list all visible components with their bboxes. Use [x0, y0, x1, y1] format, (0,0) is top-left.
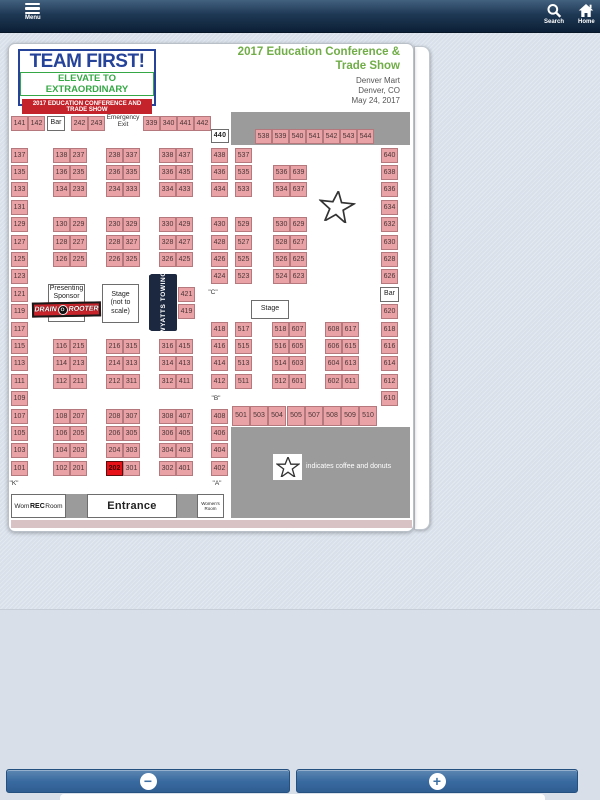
booth-142[interactable]: 142	[28, 116, 45, 131]
booth-523[interactable]: 523	[235, 269, 252, 284]
booth-414[interactable]: 414	[211, 356, 228, 371]
room-text-post: Room	[45, 503, 62, 510]
booth-327[interactable]: 327	[123, 235, 140, 250]
booth-335[interactable]: 335	[123, 165, 140, 180]
booth-610[interactable]: 610	[381, 391, 398, 406]
booth-123[interactable]: 123	[11, 269, 28, 284]
booth-227[interactable]: 227	[70, 235, 87, 250]
home-icon	[578, 3, 594, 18]
booth-528[interactable]: 528	[273, 235, 290, 250]
team-first-logo: TEAM FIRST! ELEVATE TO EXTRAORDINARY 201…	[18, 49, 156, 106]
booth-615[interactable]: 615	[342, 339, 359, 354]
booth-626[interactable]: 626	[381, 269, 398, 284]
booth-205[interactable]: 205	[70, 426, 87, 441]
booth-433[interactable]: 433	[176, 182, 193, 197]
booth-235[interactable]: 235	[70, 165, 87, 180]
booth-419[interactable]: 419	[178, 304, 195, 319]
booth-513[interactable]: 513	[235, 356, 252, 371]
booth-525[interactable]: 525	[235, 252, 252, 267]
booth-543[interactable]: 543	[340, 129, 357, 144]
area-440[interactable]: 440	[211, 129, 229, 143]
booth-408[interactable]: 408	[211, 409, 228, 424]
booth-104[interactable]: 104	[53, 443, 70, 458]
booth-429[interactable]: 429	[176, 217, 193, 232]
booth-541[interactable]: 541	[306, 129, 323, 144]
booth-606[interactable]: 606	[325, 339, 342, 354]
booth-632[interactable]: 632	[381, 217, 398, 232]
womens-rec-room: Wom REC Room	[11, 494, 66, 518]
booth-202[interactable]: 202	[106, 461, 123, 476]
booth-505[interactable]: 505	[287, 406, 305, 426]
booth-518[interactable]: 518	[272, 322, 289, 337]
booth-326[interactable]: 326	[159, 252, 176, 267]
booth-108[interactable]: 108	[53, 409, 70, 424]
booth-503[interactable]: 503	[250, 406, 268, 426]
booth-237[interactable]: 237	[70, 148, 87, 163]
booth-618[interactable]: 618	[381, 322, 398, 337]
booth-538[interactable]: 538	[255, 129, 272, 144]
booth-339[interactable]: 339	[143, 116, 160, 131]
booth-533[interactable]: 533	[235, 182, 252, 197]
booth-112[interactable]: 112	[53, 374, 70, 389]
minus-icon: −	[140, 773, 157, 790]
booth-404[interactable]: 404	[211, 443, 228, 458]
menu-button[interactable]: Menu	[25, 3, 41, 21]
booth-544[interactable]: 544	[357, 129, 374, 144]
booth-314[interactable]: 314	[159, 356, 176, 371]
booth-106[interactable]: 106	[53, 426, 70, 441]
booth-236[interactable]: 236	[106, 165, 123, 180]
booth-333[interactable]: 333	[123, 182, 140, 197]
booth-328[interactable]: 328	[159, 235, 176, 250]
booth-434[interactable]: 434	[211, 182, 228, 197]
booth-316[interactable]: 316	[159, 339, 176, 354]
room-text-pre: Wom	[14, 503, 29, 510]
booth-115[interactable]: 115	[11, 339, 28, 354]
coffee-star-marker	[316, 189, 357, 229]
booth-103[interactable]: 103	[11, 443, 28, 458]
booth-504[interactable]: 504	[268, 406, 286, 426]
booth-137[interactable]: 137	[11, 148, 28, 163]
booth-126[interactable]: 126	[53, 252, 70, 267]
event-title-line1: 2017 Education Conference &	[230, 45, 400, 59]
booth-228[interactable]: 228	[106, 235, 123, 250]
booth-114[interactable]: 114	[53, 356, 70, 371]
booth-512[interactable]: 512	[272, 374, 289, 389]
booth-315[interactable]: 315	[123, 339, 140, 354]
booth-138[interactable]: 138	[53, 148, 70, 163]
booth-620[interactable]: 620	[381, 304, 398, 319]
menu-label: Menu	[25, 15, 41, 21]
booth-329[interactable]: 329	[123, 217, 140, 232]
booth-136[interactable]: 136	[53, 165, 70, 180]
booth-133[interactable]: 133	[11, 182, 28, 197]
booth-230[interactable]: 230	[106, 217, 123, 232]
booth-402[interactable]: 402	[211, 461, 228, 476]
booth-125[interactable]: 125	[11, 252, 28, 267]
booth-229[interactable]: 229	[70, 217, 87, 232]
label-indicates: indicates coffee and donuts	[306, 463, 426, 471]
booth-438[interactable]: 438	[211, 148, 228, 163]
booth-113[interactable]: 113	[11, 356, 28, 371]
booth-623[interactable]: 623	[290, 269, 307, 284]
search-button[interactable]: Search	[544, 3, 564, 25]
booth-129[interactable]: 129	[11, 217, 28, 232]
booth-527[interactable]: 527	[235, 235, 252, 250]
booth-441[interactable]: 441	[177, 116, 194, 131]
booth-215[interactable]: 215	[70, 339, 87, 354]
booth-233[interactable]: 233	[70, 182, 87, 197]
booth-526[interactable]: 526	[273, 252, 290, 267]
sponsor-text-right: ROOTER	[69, 305, 99, 313]
room-text-bold: REC	[30, 503, 45, 510]
booth-416[interactable]: 416	[211, 339, 228, 354]
booth-102[interactable]: 102	[53, 461, 70, 476]
booth-539[interactable]: 539	[272, 129, 289, 144]
booth-436[interactable]: 436	[211, 165, 228, 180]
booth-530[interactable]: 530	[273, 217, 290, 232]
booth-415[interactable]: 415	[176, 339, 193, 354]
booth-516[interactable]: 516	[272, 339, 289, 354]
booth-325[interactable]: 325	[123, 252, 140, 267]
booth-427[interactable]: 427	[176, 235, 193, 250]
booth-601[interactable]: 601	[289, 374, 306, 389]
booth-412[interactable]: 412	[211, 374, 228, 389]
booth-207[interactable]: 207	[70, 409, 87, 424]
area-stage[interactable]: Stage	[251, 300, 289, 319]
booth-529[interactable]: 529	[235, 217, 252, 232]
zoom-in-button[interactable]: +	[296, 769, 578, 793]
booth-430[interactable]: 430	[211, 217, 228, 232]
booth-203[interactable]: 203	[70, 443, 87, 458]
star-icon	[317, 189, 357, 224]
booth-413[interactable]: 413	[176, 356, 193, 371]
booth-216[interactable]: 216	[106, 339, 123, 354]
area-women-s-room[interactable]: Women's Room	[197, 494, 224, 518]
booth-302[interactable]: 302	[159, 461, 176, 476]
booth-111[interactable]: 111	[11, 374, 28, 389]
booth-507[interactable]: 507	[305, 406, 323, 426]
event-title-block: 2017 Education Conference & Trade Show D…	[230, 45, 400, 106]
area-bar[interactable]: Bar	[380, 287, 399, 302]
booth-524[interactable]: 524	[273, 269, 290, 284]
booth-204[interactable]: 204	[106, 443, 123, 458]
booth-537[interactable]: 537	[235, 148, 252, 163]
event-city: Denver, CO	[230, 86, 400, 96]
booth-406[interactable]: 406	[211, 426, 228, 441]
booth-607[interactable]: 607	[289, 322, 306, 337]
booth-540[interactable]: 540	[289, 129, 306, 144]
booth-303[interactable]: 303	[123, 443, 140, 458]
booth-401[interactable]: 401	[176, 461, 193, 476]
booth-603[interactable]: 603	[289, 356, 306, 371]
booth-612[interactable]: 612	[381, 374, 398, 389]
booth-421[interactable]: 421	[178, 287, 195, 302]
booth-107[interactable]: 107	[11, 409, 28, 424]
booth-535[interactable]: 535	[235, 165, 252, 180]
legend-star-box	[273, 454, 302, 480]
sponsor-text-left: DRAIN	[34, 306, 56, 313]
booth-407[interactable]: 407	[176, 409, 193, 424]
booth-301[interactable]: 301	[123, 461, 140, 476]
label-c: "C"	[203, 289, 223, 296]
booth-636[interactable]: 636	[381, 182, 398, 197]
booth-611[interactable]: 611	[342, 374, 359, 389]
search-label: Search	[544, 19, 564, 25]
booth-306[interactable]: 306	[159, 426, 176, 441]
booth-334[interactable]: 334	[159, 182, 176, 197]
event-date: May 24, 2017	[230, 96, 400, 106]
booth-127[interactable]: 127	[11, 235, 28, 250]
area-stage-not-to-scale-[interactable]: Stage (not to scale)	[102, 284, 139, 323]
booth-336[interactable]: 336	[159, 165, 176, 180]
booth-501[interactable]: 501	[232, 406, 250, 426]
booth-625[interactable]: 625	[290, 252, 307, 267]
booth-616[interactable]: 616	[381, 339, 398, 354]
booth-109[interactable]: 109	[11, 391, 28, 406]
wyatts-towing-text: WYATTS TOWING	[160, 271, 167, 334]
booth-536[interactable]: 536	[273, 165, 290, 180]
booth-424[interactable]: 424	[211, 269, 228, 284]
wyatts-towing-logo: WYATTS TOWING	[150, 274, 177, 331]
search-icon	[546, 3, 562, 18]
booth-510[interactable]: 510	[359, 406, 377, 426]
booth-308[interactable]: 308	[159, 409, 176, 424]
label-k: "K"	[4, 480, 24, 487]
booth-627[interactable]: 627	[290, 235, 307, 250]
booth-435[interactable]: 435	[176, 165, 193, 180]
booth-617[interactable]: 617	[342, 322, 359, 337]
booth-101[interactable]: 101	[11, 461, 28, 476]
booth-405[interactable]: 405	[176, 426, 193, 441]
logo-title: TEAM FIRST!	[20, 52, 154, 72]
home-button[interactable]: Home	[578, 3, 595, 25]
sponsor-emblem-icon: O	[58, 304, 68, 314]
hamburger-icon	[25, 3, 40, 14]
booth-634[interactable]: 634	[381, 200, 398, 215]
booth-305[interactable]: 305	[123, 426, 140, 441]
booth-337[interactable]: 337	[123, 148, 140, 163]
booth-515[interactable]: 515	[235, 339, 252, 354]
wall-block	[66, 494, 87, 518]
booth-629[interactable]: 629	[290, 217, 307, 232]
booth-135[interactable]: 135	[11, 165, 28, 180]
booth-330[interactable]: 330	[159, 217, 176, 232]
logo-subtitle: ELEVATE TO EXTRAORDINARY	[20, 72, 154, 96]
booth-437[interactable]: 437	[176, 148, 193, 163]
booth-509[interactable]: 509	[341, 406, 359, 426]
area-entrance[interactable]: Entrance	[87, 494, 177, 518]
booth-534[interactable]: 534	[273, 182, 290, 197]
booth-630[interactable]: 630	[381, 235, 398, 250]
top-navigation-bar: Menu Search Home	[0, 0, 600, 33]
booth-517[interactable]: 517	[235, 322, 252, 337]
booth-105[interactable]: 105	[11, 426, 28, 441]
star-icon	[276, 457, 300, 477]
plus-icon: +	[429, 773, 446, 790]
wall-block	[231, 427, 410, 518]
booth-426[interactable]: 426	[211, 252, 228, 267]
booth-608[interactable]: 608	[325, 322, 342, 337]
booth-119[interactable]: 119	[11, 304, 28, 319]
booth-511[interactable]: 511	[235, 374, 252, 389]
booth-238[interactable]: 238	[106, 148, 123, 163]
booth-604[interactable]: 604	[325, 356, 342, 371]
booth-508[interactable]: 508	[323, 406, 341, 426]
booth-411[interactable]: 411	[176, 374, 193, 389]
event-title-line2: Trade Show	[230, 59, 400, 73]
booth-131[interactable]: 131	[11, 200, 28, 215]
booth-403[interactable]: 403	[176, 443, 193, 458]
booth-639[interactable]: 639	[290, 165, 307, 180]
booth-226[interactable]: 226	[106, 252, 123, 267]
footer-panel-edge	[60, 794, 545, 800]
booth-116[interactable]: 116	[53, 339, 70, 354]
booth-425[interactable]: 425	[176, 252, 193, 267]
booth-134[interactable]: 134	[53, 182, 70, 197]
booth-117[interactable]: 117	[11, 322, 28, 337]
booth-208[interactable]: 208	[106, 409, 123, 424]
label-a: "A"	[207, 480, 227, 487]
booth-418[interactable]: 418	[211, 322, 228, 337]
booth-141[interactable]: 141	[11, 116, 28, 131]
booth-340[interactable]: 340	[160, 116, 177, 131]
logo-banner: 2017 EDUCATION CONFERENCE AND TRADE SHOW	[22, 99, 152, 114]
booth-304[interactable]: 304	[159, 443, 176, 458]
floorplan-bottom-edge	[11, 520, 412, 528]
label-emergency: Emergency Exit	[102, 114, 144, 129]
booth-514[interactable]: 514	[272, 356, 289, 371]
wall-block	[176, 494, 198, 518]
area-bar[interactable]: Bar	[47, 116, 65, 131]
booth-312[interactable]: 312	[159, 374, 176, 389]
booth-234[interactable]: 234	[106, 182, 123, 197]
label-b: "B"	[206, 395, 226, 402]
booth-313[interactable]: 313	[123, 356, 140, 371]
booth-640[interactable]: 640	[381, 148, 398, 163]
event-venue: Denver Mart	[230, 76, 400, 86]
booth-638[interactable]: 638	[381, 165, 398, 180]
booth-428[interactable]: 428	[211, 235, 228, 250]
booth-225[interactable]: 225	[70, 252, 87, 267]
booth-338[interactable]: 338	[159, 148, 176, 163]
booth-214[interactable]: 214	[106, 356, 123, 371]
booth-614[interactable]: 614	[381, 356, 398, 371]
booth-542[interactable]: 542	[323, 129, 340, 144]
home-label: Home	[578, 19, 595, 25]
booth-128[interactable]: 128	[53, 235, 70, 250]
booth-213[interactable]: 213	[70, 356, 87, 371]
booth-242[interactable]: 242	[71, 116, 88, 131]
booth-442[interactable]: 442	[194, 116, 211, 131]
booth-637[interactable]: 637	[290, 182, 307, 197]
booth-307[interactable]: 307	[123, 409, 140, 424]
booth-602[interactable]: 602	[325, 374, 342, 389]
booth-212[interactable]: 212	[106, 374, 123, 389]
booth-206[interactable]: 206	[106, 426, 123, 441]
booth-628[interactable]: 628	[381, 252, 398, 267]
floorplan-layer: 1411422422433393404414421371351331311291…	[0, 0, 600, 800]
drain-o-rooter-sponsor-banner: DRAIN O ROOTER	[32, 301, 101, 317]
booth-121[interactable]: 121	[11, 287, 28, 302]
booth-130[interactable]: 130	[53, 217, 70, 232]
booth-201[interactable]: 201	[70, 461, 87, 476]
booth-605[interactable]: 605	[289, 339, 306, 354]
booth-211[interactable]: 211	[70, 374, 87, 389]
zoom-out-button[interactable]: −	[6, 769, 290, 793]
booth-311[interactable]: 311	[123, 374, 140, 389]
booth-613[interactable]: 613	[342, 356, 359, 371]
